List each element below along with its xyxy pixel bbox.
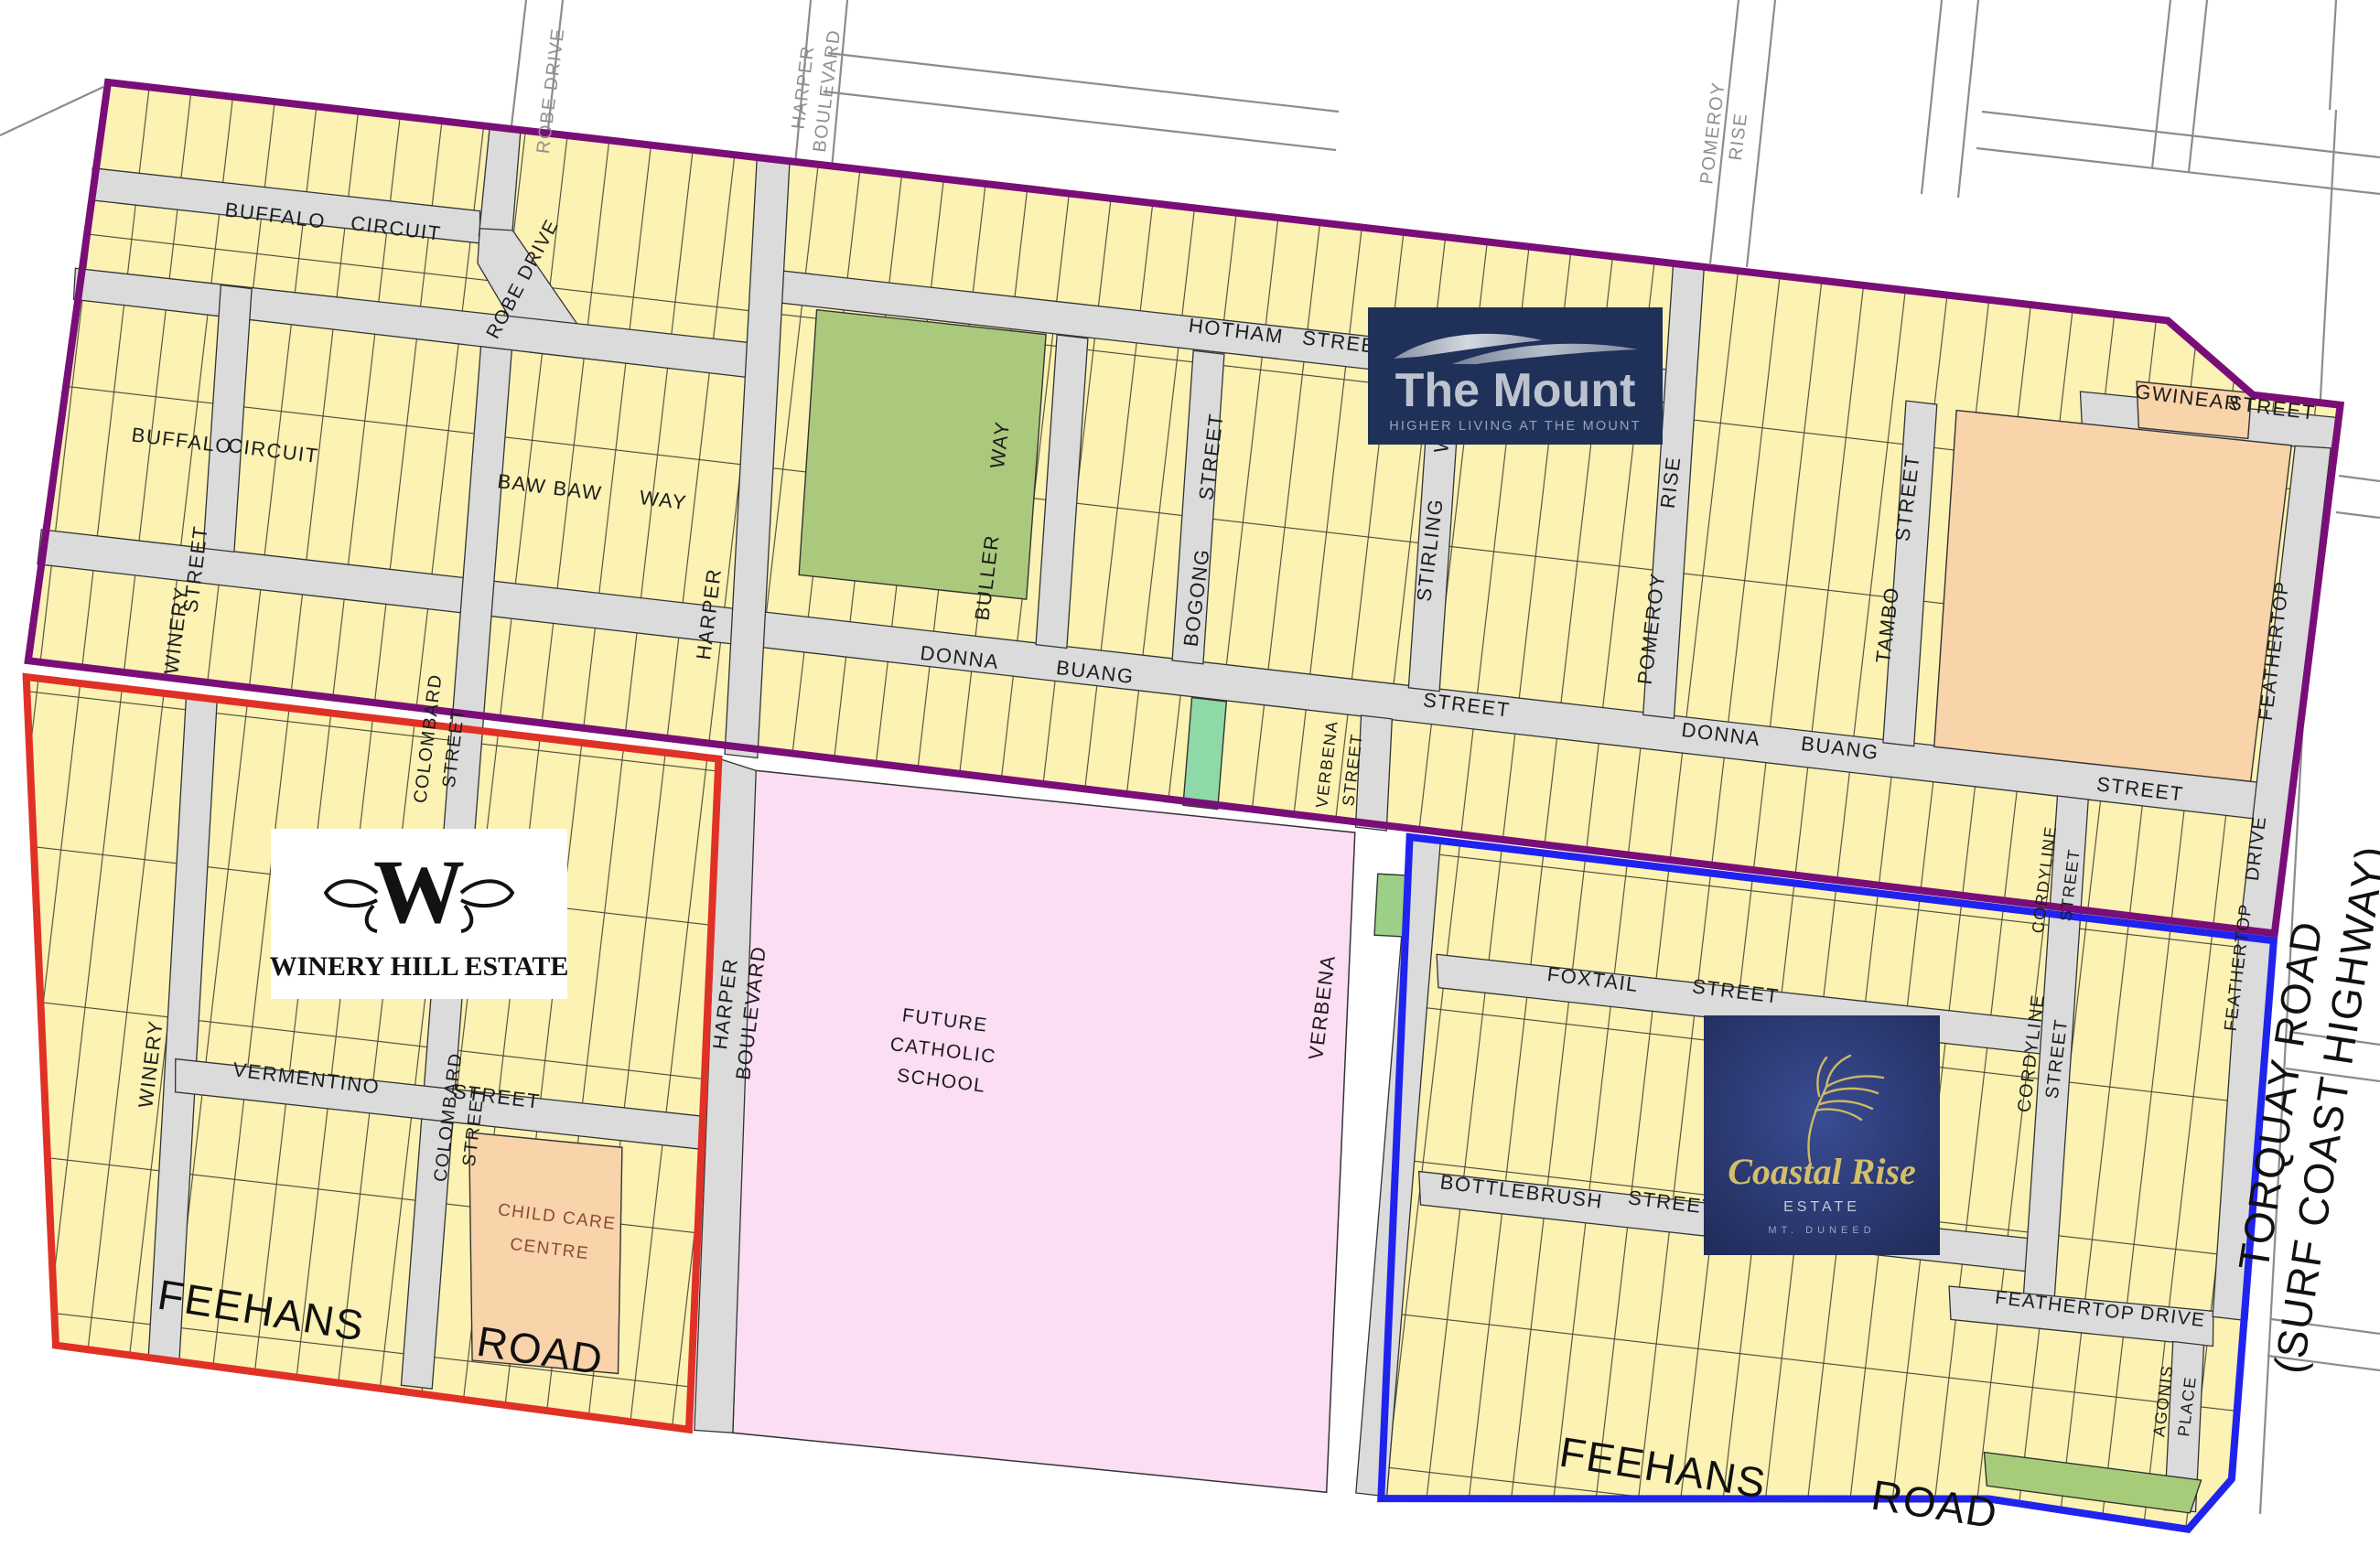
coastal-rise-logo: Coastal Rise ESTATE MT. DUNEED <box>1704 1015 1940 1255</box>
the-mount-logo: The Mount HIGHER LIVING AT THE MOUNT <box>1368 307 1663 445</box>
coastal-rise-logo-title: Coastal Rise <box>1728 1151 1916 1192</box>
pomeroy-rise-external-label-2: RISE <box>1726 112 1751 162</box>
winery-hill-logo: W WINERY HILL ESTATE <box>270 829 569 999</box>
winery-hill-logo-title: WINERY HILL ESTATE <box>270 951 569 982</box>
peach-site-large <box>1918 407 2291 784</box>
winery-hill-monogram: W <box>373 841 465 942</box>
winery-hill-estate-area <box>0 677 766 1430</box>
park-area <box>786 308 1057 601</box>
mount-logo-subtitle: HIGHER LIVING AT THE MOUNT <box>1389 419 1642 434</box>
coastal-rise-logo-subtitle: ESTATE <box>1783 1199 1860 1215</box>
future-catholic-school-area <box>678 763 1402 1501</box>
estate-masterplan-map: ROBE DRIVEHARPERBOULEVARDPOMEROYRISETORQ… <box>0 0 2380 1546</box>
coastal-rise-logo-location: MT. DUNEED <box>1768 1225 1875 1236</box>
masterplan-svg: ROBE DRIVEHARPERBOULEVARDPOMEROYRISETORQ… <box>0 0 2380 1546</box>
mount-logo-title: The Mount <box>1395 364 1636 417</box>
